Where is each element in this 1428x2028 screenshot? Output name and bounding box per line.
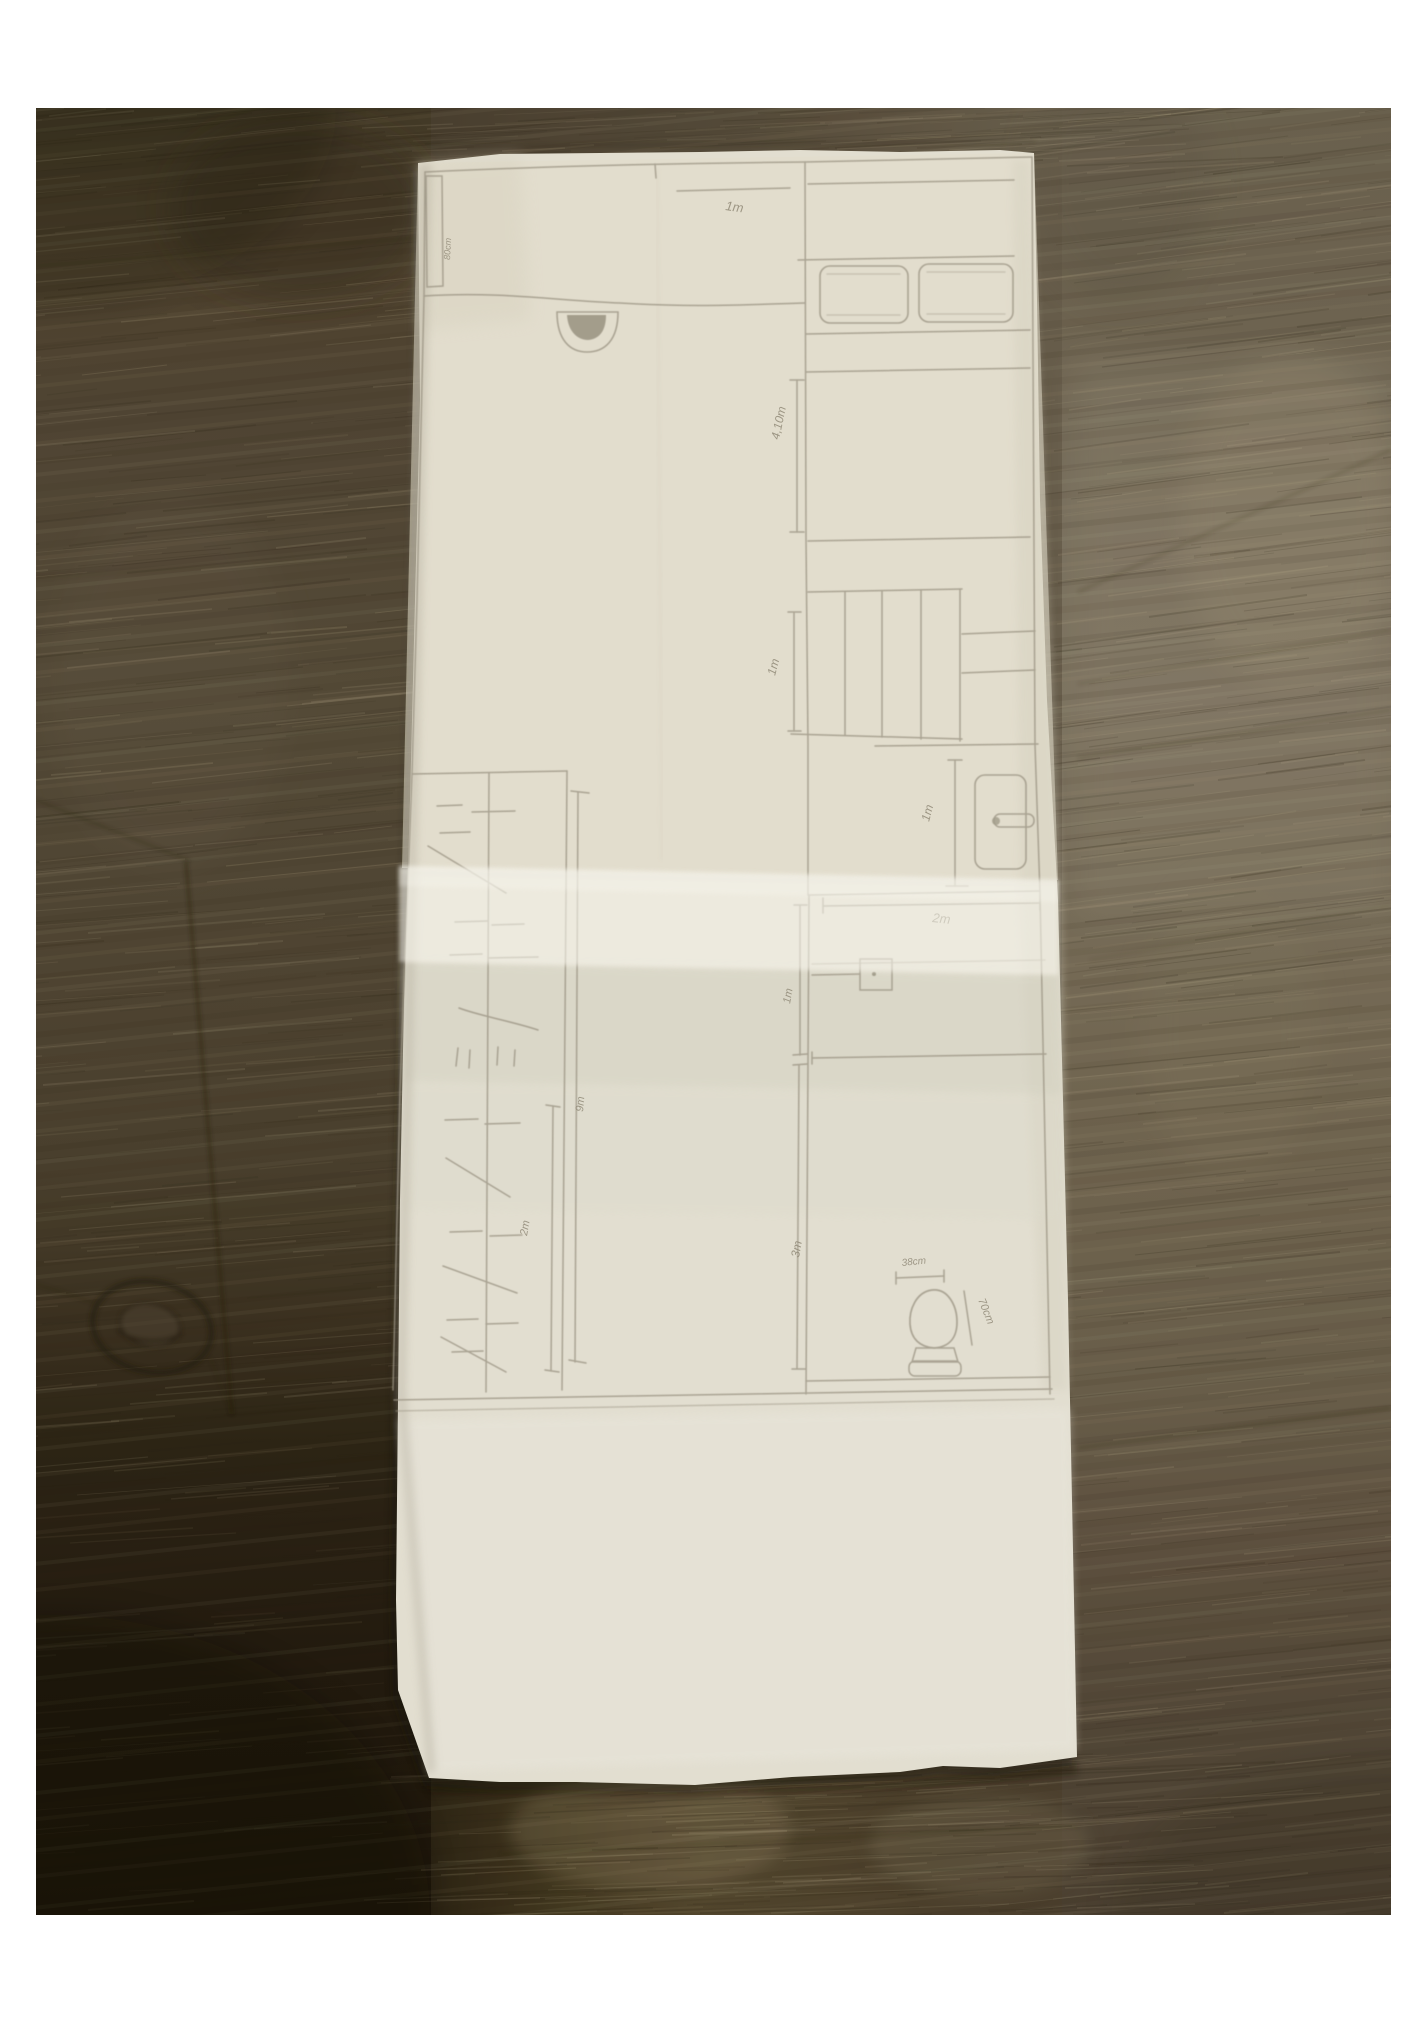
svg-text:3m: 3m [788, 1240, 805, 1259]
svg-text:1m: 1m [725, 198, 745, 215]
svg-text:80cm: 80cm [442, 237, 453, 260]
svg-text:9m: 9m [574, 1096, 587, 1112]
